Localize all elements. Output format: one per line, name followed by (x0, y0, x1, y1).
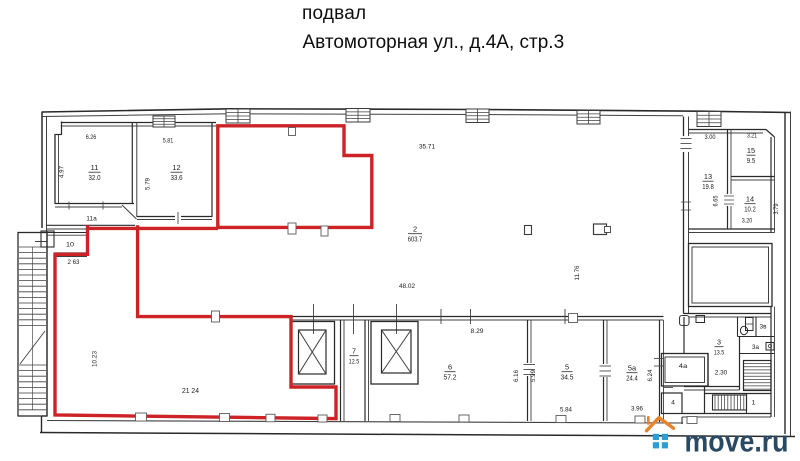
svg-text:57.2: 57.2 (444, 375, 457, 382)
svg-text:21 24: 21 24 (182, 388, 199, 395)
svg-text:13: 13 (704, 172, 712, 181)
svg-text:3а: 3а (752, 345, 760, 351)
svg-text:5.99: 5.99 (530, 369, 537, 382)
svg-text:24.4: 24.4 (626, 376, 638, 383)
svg-text:6: 6 (448, 363, 452, 372)
svg-text:3.79: 3.79 (773, 203, 780, 215)
svg-text:34.5: 34.5 (561, 375, 574, 382)
svg-text:12: 12 (172, 163, 180, 172)
svg-text:move.ru: move.ru (685, 424, 789, 459)
svg-text:603.7: 603.7 (408, 237, 423, 244)
svg-text:33.6: 33.6 (171, 175, 183, 182)
svg-text:3в: 3в (760, 325, 767, 331)
svg-text:15: 15 (747, 146, 755, 155)
svg-text:6.65: 6.65 (713, 195, 720, 207)
svg-text:7: 7 (352, 347, 356, 356)
svg-text:8.29: 8.29 (471, 328, 484, 335)
svg-text:3.21: 3.21 (747, 133, 757, 140)
svg-text:4а: 4а (679, 363, 688, 370)
svg-text:10.23: 10.23 (92, 351, 99, 367)
svg-text:6.16: 6.16 (513, 369, 520, 382)
svg-text:3: 3 (717, 338, 721, 347)
svg-text:5: 5 (565, 363, 569, 372)
svg-text:5а: 5а (628, 364, 637, 373)
svg-text:5.79: 5.79 (145, 177, 152, 190)
svg-text:3.00: 3.00 (705, 134, 716, 141)
svg-text:19.8: 19.8 (702, 184, 714, 191)
svg-text:5.81: 5.81 (163, 138, 174, 145)
svg-text:13.5: 13.5 (714, 350, 725, 357)
svg-text:3.96: 3.96 (631, 406, 643, 413)
svg-text:48.02: 48.02 (399, 283, 415, 290)
svg-text:14: 14 (746, 195, 754, 204)
svg-text:5.84: 5.84 (560, 407, 572, 414)
svg-text:6.24: 6.24 (647, 369, 654, 382)
svg-text:11а: 11а (86, 216, 97, 223)
svg-text:4.97: 4.97 (59, 165, 66, 178)
svg-text:10: 10 (66, 242, 74, 249)
svg-text:35.71: 35.71 (419, 144, 435, 151)
svg-text:подвал: подвал (302, 3, 366, 24)
svg-text:1: 1 (752, 400, 756, 407)
svg-text:9.5: 9.5 (747, 158, 756, 165)
svg-text:4: 4 (671, 400, 675, 407)
svg-text:2.30: 2.30 (715, 370, 728, 377)
svg-text:6.26: 6.26 (86, 134, 97, 141)
svg-text:3.20: 3.20 (742, 218, 753, 225)
svg-text:11.76: 11.76 (574, 265, 581, 280)
svg-text:32.0: 32.0 (89, 175, 101, 182)
svg-text:12.5: 12.5 (349, 359, 360, 366)
svg-text:11: 11 (91, 163, 99, 172)
svg-text:2: 2 (413, 225, 417, 234)
svg-text:Автомоторная ул., д.4А, стр.3: Автомоторная ул., д.4А, стр.3 (303, 32, 565, 53)
svg-text:2 63: 2 63 (68, 259, 80, 266)
svg-text:10.2: 10.2 (744, 207, 756, 214)
